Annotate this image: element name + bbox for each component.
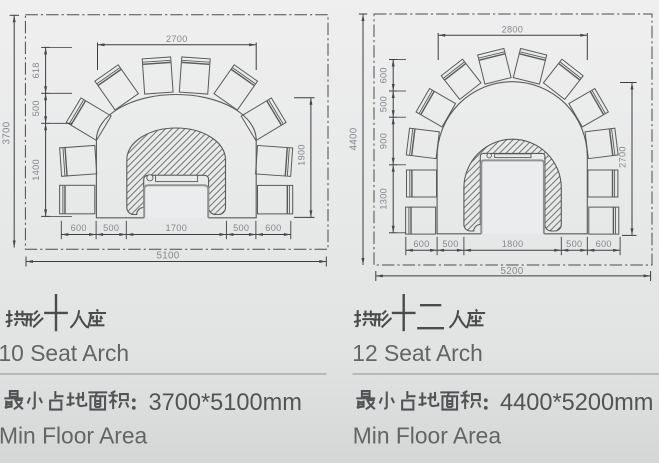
svg-text:600: 600 bbox=[71, 223, 87, 233]
svg-text:12 Seat Arch: 12 Seat Arch bbox=[352, 340, 483, 366]
svg-text:900: 900 bbox=[378, 133, 388, 149]
svg-text:1900: 1900 bbox=[297, 144, 307, 166]
svg-text:600: 600 bbox=[265, 223, 281, 233]
svg-text:4400: 4400 bbox=[348, 127, 359, 150]
svg-text:3700: 3700 bbox=[1, 121, 12, 144]
svg-text:500: 500 bbox=[31, 100, 41, 116]
svg-text:500: 500 bbox=[566, 239, 582, 249]
svg-text:4400*5200mm: 4400*5200mm bbox=[500, 390, 653, 416]
svg-text:2700: 2700 bbox=[618, 146, 628, 168]
svg-text:2800: 2800 bbox=[502, 25, 524, 35]
svg-text:Min Floor Area: Min Floor Area bbox=[353, 423, 502, 449]
svg-text:5200: 5200 bbox=[501, 266, 524, 277]
svg-text:1700: 1700 bbox=[165, 223, 187, 233]
svg-text:2700: 2700 bbox=[166, 34, 188, 44]
svg-text:1800: 1800 bbox=[502, 239, 524, 249]
svg-text:618: 618 bbox=[31, 62, 41, 78]
svg-text:1400: 1400 bbox=[31, 159, 41, 181]
svg-text:600: 600 bbox=[413, 239, 429, 249]
svg-text:500: 500 bbox=[442, 239, 458, 249]
svg-text:3700*5100mm: 3700*5100mm bbox=[149, 390, 302, 416]
svg-text:10 Seat Arch: 10 Seat Arch bbox=[0, 340, 129, 366]
svg-text:600: 600 bbox=[378, 67, 388, 83]
svg-text:500: 500 bbox=[378, 96, 388, 112]
svg-text:500: 500 bbox=[233, 223, 249, 233]
svg-text:1300: 1300 bbox=[378, 188, 388, 210]
svg-text:500: 500 bbox=[103, 223, 119, 233]
svg-text:5100: 5100 bbox=[157, 250, 180, 261]
svg-text:600: 600 bbox=[596, 239, 612, 249]
svg-text:Min Floor Area: Min Floor Area bbox=[0, 423, 148, 449]
